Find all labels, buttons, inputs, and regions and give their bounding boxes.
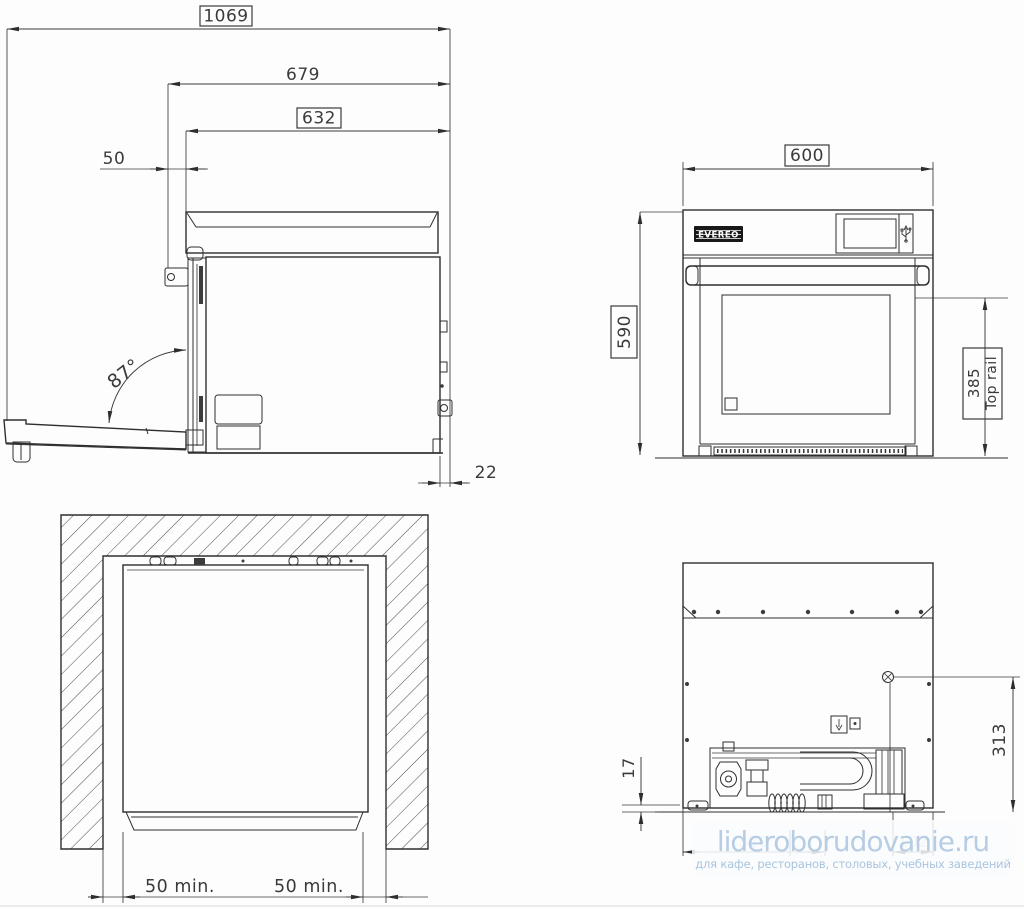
installation-view: 50 min. 50 min. <box>61 515 428 903</box>
watermark-tagline: для кафе, ресторанов, столовых, учебных … <box>695 857 1010 871</box>
door-handle-front <box>686 266 929 285</box>
touchscreen <box>844 219 896 248</box>
dim-rear-gap: 22 <box>475 463 498 483</box>
dim-top-rail: 385 <box>965 368 983 398</box>
top-rail-label: Top rail <box>984 356 1000 411</box>
dim-width: 600 <box>790 146 824 166</box>
side-view-dimension-lines <box>7 29 470 483</box>
dim-height: 590 <box>615 315 635 349</box>
install-oven-top <box>123 557 368 830</box>
brand-text: EVEREO <box>698 231 739 241</box>
dim-body-depth: 632 <box>302 109 336 129</box>
rear-fitting <box>440 321 447 332</box>
side-view-extension-lines <box>7 29 450 487</box>
front-bracket <box>165 268 188 286</box>
electrical-symbol <box>831 716 860 733</box>
corrugated-hose <box>769 794 805 812</box>
dim-bottom-gap: 17 <box>619 757 638 778</box>
rear-view-outline <box>655 563 945 812</box>
drain-box <box>215 395 262 424</box>
dim-total-depth: 1069 <box>203 7 248 27</box>
brand-logo: EVEREO <box>694 226 743 242</box>
front-view: 600 590 385 Top rail EVEREO <box>611 145 1008 458</box>
side-view-outline <box>4 212 452 462</box>
door-window <box>722 295 890 414</box>
dim-front-offset: 50 <box>103 149 126 169</box>
dim-right-clearance: 50 min. <box>274 877 344 897</box>
service-assembly <box>696 742 915 812</box>
rear-dim-17: 17 <box>619 757 680 831</box>
pump <box>716 762 741 796</box>
control-panel <box>836 214 913 253</box>
door-top-view <box>126 812 363 830</box>
rear-view: 17 313 320 102 <box>619 563 1020 856</box>
front-view-outline: EVEREO <box>655 210 1008 458</box>
dim-left-clearance: 50 min. <box>145 877 215 897</box>
watermark-site: lideroborudovanie.ru <box>717 827 989 857</box>
window-corner-detail <box>725 398 737 410</box>
dim-door-open-depth: 679 <box>286 65 320 85</box>
rear-fitting <box>440 362 447 372</box>
install-dimension-lines <box>88 832 428 903</box>
valve <box>746 760 768 770</box>
dim-connector-height: 313 <box>990 723 1010 757</box>
technical-drawing-page: 1069 679 632 50 87° 22 <box>0 0 1024 909</box>
oven-technical-drawing: 1069 679 632 50 87° 22 <box>0 0 1024 909</box>
door-open-angle: 87° <box>103 355 144 394</box>
watermark: lideroborudovanie.ru для кафе, ресторано… <box>692 820 1014 877</box>
usb-icon <box>901 226 911 242</box>
door-hinge <box>186 430 203 445</box>
side-view: 1069 679 632 50 87° 22 <box>4 6 497 487</box>
rear-dim-313: 313 <box>894 677 1020 812</box>
drain-box-lower <box>217 426 260 449</box>
